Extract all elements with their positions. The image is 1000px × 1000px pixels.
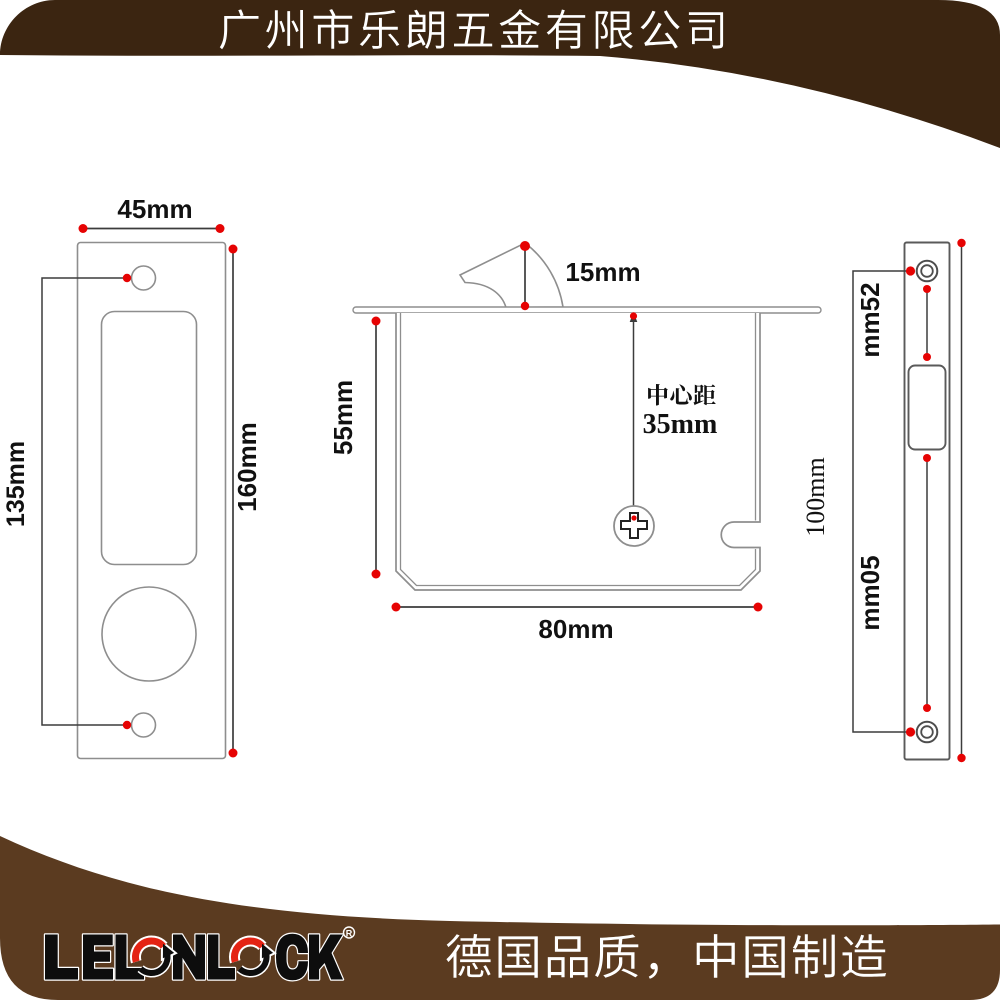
svg-text:100mm: 100mm bbox=[801, 457, 830, 536]
svg-text:160mm: 160mm bbox=[232, 422, 262, 512]
svg-text:55mm: 55mm bbox=[328, 380, 358, 455]
svg-text:35mm: 35mm bbox=[643, 409, 718, 440]
svg-text:15mm: 15mm bbox=[565, 257, 640, 287]
svg-text:45mm: 45mm bbox=[117, 194, 192, 224]
svg-text:mm52: mm52 bbox=[855, 282, 885, 357]
svg-text:80mm: 80mm bbox=[538, 614, 613, 644]
svg-text:135mm: 135mm bbox=[2, 441, 30, 527]
svg-text:R: R bbox=[346, 929, 353, 939]
svg-text:mm05: mm05 bbox=[855, 555, 885, 630]
